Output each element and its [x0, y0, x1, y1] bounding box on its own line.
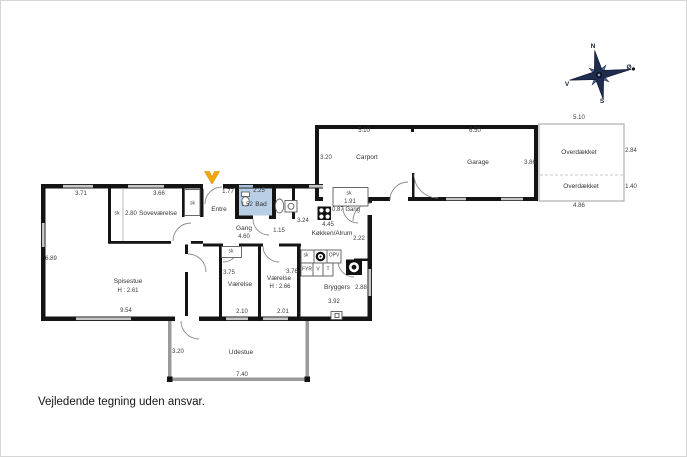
compass-rose-icon [565, 44, 639, 105]
dim-carport-top: 5.10 [358, 128, 370, 134]
label-closet-vaerelse1: sk [229, 250, 234, 255]
dim-spisestue-bottom: 9.54 [120, 308, 132, 314]
dim-carport-left: 3.20 [320, 155, 332, 161]
label-spisestue: Spisestue [114, 279, 143, 286]
label-closet-entre: sk [190, 202, 195, 207]
label-closet-sovevaerelse: sk [115, 212, 120, 217]
label-sovevaerelse: Soveværelse [139, 211, 177, 218]
label-garage: Garage [467, 160, 489, 167]
dim-overdaekket-bottom: 4.86 [573, 203, 585, 209]
dim-overdaekket-1: 2.84 [625, 148, 637, 154]
dim-overdaekket-top: 5.10 [573, 115, 585, 121]
label-opv: OPV [329, 254, 340, 259]
dim-entre: 1.77 [222, 189, 234, 195]
label-bad: Bad [255, 202, 267, 209]
label-vaerelse2: Værelse [267, 276, 291, 283]
sink-icon [275, 199, 283, 213]
disclaimer-caption: Vejledende tegning uden ansvar. [38, 397, 205, 409]
dim-gang-2: 1.15 [273, 228, 285, 234]
walls-group [41, 125, 538, 321]
label-overdaekket-2: Overdækket [563, 184, 598, 191]
label-carport: Carport [356, 155, 378, 162]
label-vaerelse2-height: H : 2.66 [269, 284, 290, 290]
dim-vaerelse1: 3.75 [223, 270, 235, 276]
label-koekken: Køkken/Alrum [312, 231, 353, 238]
dim-koekken-2: 4.45 [322, 222, 334, 228]
label-overdaekket-1: Overdækket [561, 150, 596, 157]
dim-spisestue-top: 3.71 [75, 191, 87, 197]
label-bryggers: Bryggers [324, 285, 350, 292]
washer-icon [316, 252, 326, 262]
dim-vaerelse2-bottom: 2.01 [277, 309, 289, 315]
label-gang: Gang [236, 226, 252, 233]
floorplan-page: 3.71 6.89 Spisestue H : 2.61 9.54 3.66 s… [0, 0, 687, 457]
dim-bryggers: 2.88 [355, 285, 367, 291]
label-v: V [316, 267, 319, 272]
dim-vaerelse1-bottom: 2.10 [236, 309, 248, 315]
dim-bryggers-bottom: 3.92 [328, 299, 340, 305]
label-fyr: FYR [302, 267, 312, 272]
dim-udestue-bottom: 7.40 [236, 372, 248, 378]
dim-gang: 4.60 [238, 234, 250, 240]
label-closet-koekken: sk [347, 192, 352, 197]
dim-gang-087: 0.87 Gang [332, 207, 360, 213]
dim-garage-right: 3.86 [524, 160, 536, 166]
label-t: T [326, 267, 329, 272]
compass-west-label: V [565, 82, 569, 89]
label-entre: Entre [211, 207, 227, 214]
dim-overdaekket-2: 1.40 [625, 184, 637, 190]
label-closet-bryggers: sk [304, 254, 309, 259]
dim-sovevaerelse-width: 2.80 [125, 211, 137, 217]
dim-bad-height: 1.52 [241, 202, 253, 208]
compass-south-label: S [600, 99, 604, 106]
stove-icon [318, 207, 332, 221]
dim-garage-top: 6.50 [469, 128, 481, 134]
dryer-icon [346, 260, 362, 276]
dim-bad-width: 2.25 [253, 188, 265, 194]
dim-koekken-1: 3.24 [297, 218, 309, 224]
label-spisestue-height: H : 2.61 [117, 288, 138, 294]
compass-north-label: N [591, 44, 596, 51]
dim-spisestue-left: 6.89 [45, 256, 57, 262]
label-udestue: Udestue [229, 350, 253, 357]
dim-udestue-left: 3.20 [172, 349, 184, 355]
label-vaerelse1: Værelse [228, 282, 252, 289]
entrance-marker-icon [205, 172, 220, 185]
dim-sovevaerelse-top: 3.66 [153, 191, 165, 197]
compass-east-label: Ø [626, 65, 631, 72]
dim-closet-koekken: 1.91 [344, 199, 356, 205]
dim-koekken-3: 2.22 [353, 236, 365, 242]
